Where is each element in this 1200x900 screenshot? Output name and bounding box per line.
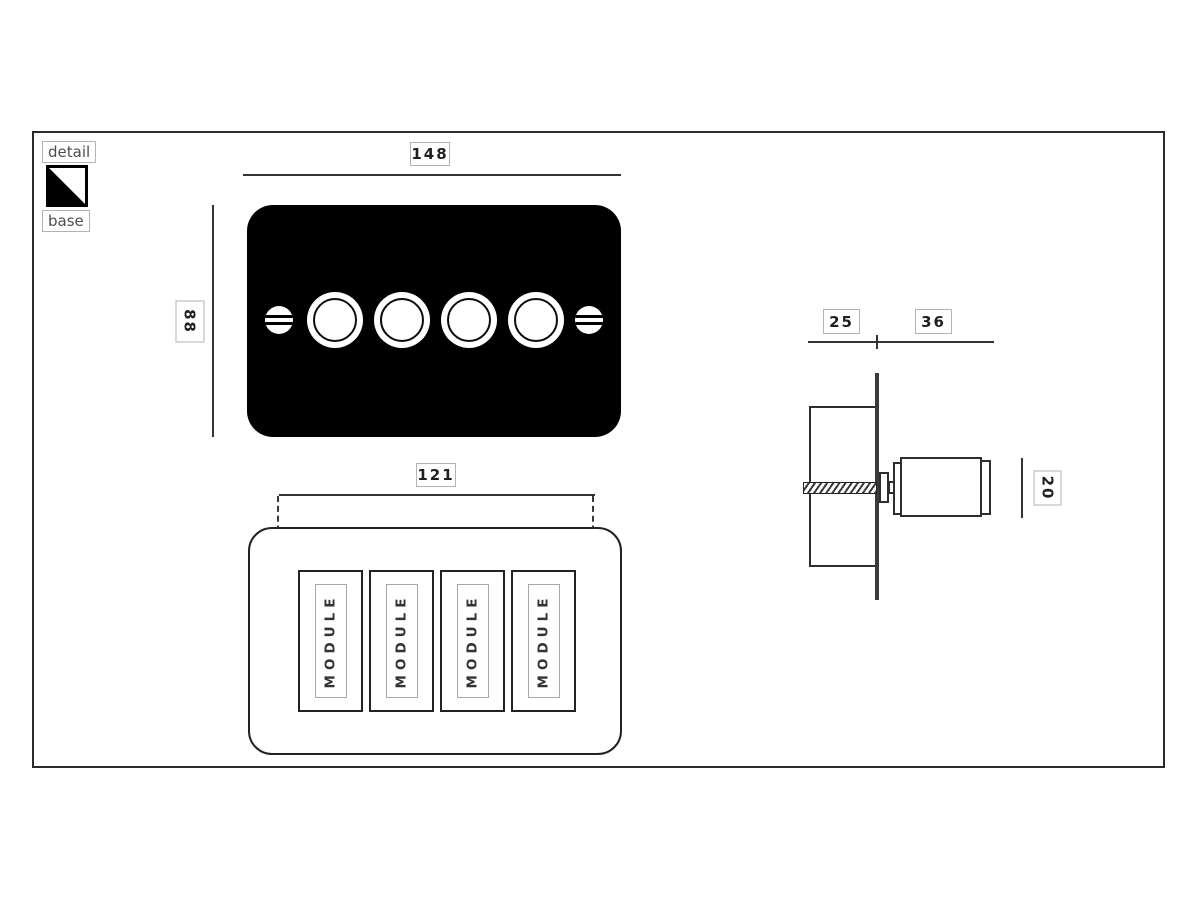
front-plate-view	[247, 205, 621, 437]
dimmer-knob-1	[307, 292, 363, 348]
knob-flange-right-side	[980, 460, 991, 515]
dimmer-knob-4	[508, 292, 564, 348]
knob-body-side	[900, 457, 982, 517]
dim-line-width-148	[243, 174, 621, 176]
dim-projection-36: 36	[915, 309, 952, 334]
module-slot-3: MODULE	[440, 570, 505, 712]
dim-tick-side	[876, 335, 878, 349]
module-label-3: MODULE	[465, 594, 481, 689]
module-slot-1-inner: MODULE	[315, 584, 347, 698]
screw-icon-left	[265, 306, 293, 334]
module-label-2: MODULE	[394, 594, 410, 689]
dim-recess-depth-25: 25	[823, 309, 860, 334]
dimmer-knob-2-ring	[380, 298, 424, 342]
finish-swatch-icon	[46, 165, 88, 207]
threaded-rod-icon	[803, 482, 877, 494]
dimmer-knob-2	[374, 292, 430, 348]
dimmer-knob-3-ring	[447, 298, 491, 342]
dim-fixing-centres-121: 121	[416, 463, 456, 487]
dim-line-121	[279, 494, 595, 496]
dim-line-knob-20	[1021, 458, 1023, 518]
module-slot-4-inner: MODULE	[528, 584, 560, 698]
dim-width-148: 148	[410, 142, 450, 166]
module-slot-2-inner: MODULE	[386, 584, 418, 698]
screw-icon-right	[575, 306, 603, 334]
module-slot-1: MODULE	[298, 570, 363, 712]
legend-base-label: base	[42, 210, 90, 232]
dim-line-side-depth	[808, 341, 994, 343]
technical-drawing-canvas: detail base 148 88 121 MODULE MODULE MOD…	[0, 0, 1200, 900]
dimmer-knob-4-ring	[514, 298, 558, 342]
dimmer-knob-3	[441, 292, 497, 348]
dim-line-height-88	[212, 205, 214, 437]
dimmer-knob-1-ring	[313, 298, 357, 342]
module-slot-3-inner: MODULE	[457, 584, 489, 698]
legend-detail-label: detail	[42, 141, 96, 163]
dim-knob-height-20: 20	[1034, 471, 1062, 506]
module-slot-2: MODULE	[369, 570, 434, 712]
dim-height-88: 88	[176, 301, 205, 343]
module-slot-4: MODULE	[511, 570, 576, 712]
module-label-1: MODULE	[323, 594, 339, 689]
module-label-4: MODULE	[536, 594, 552, 689]
